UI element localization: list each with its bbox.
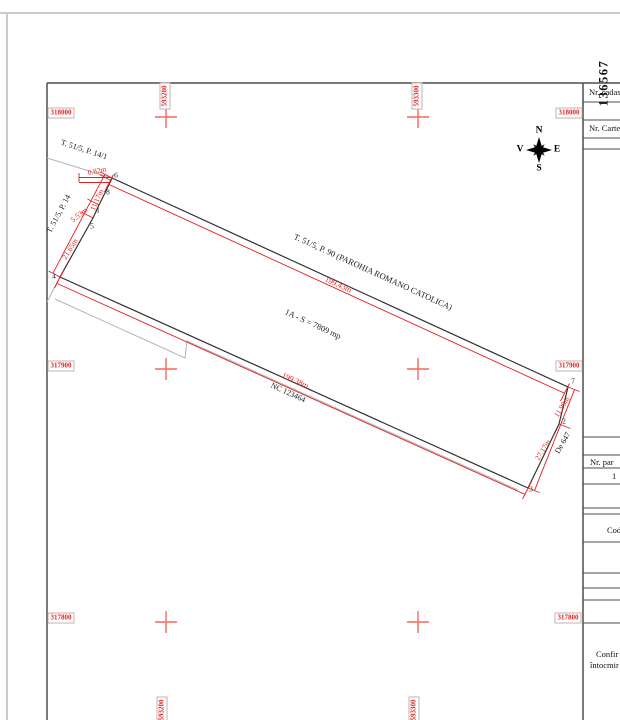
panel-confirm-line2: întocmir (590, 661, 619, 670)
northing-label-317900-right: 317900 (556, 361, 583, 372)
compass-rose (526, 137, 552, 163)
grid-crosses (155, 106, 429, 633)
northing-label-317800-left: 317800 (48, 613, 75, 624)
panel-confirm-line1: Confir (596, 650, 618, 659)
panel-nr-carte-label: Nr. Carte (589, 124, 620, 133)
compass-south-label: S (536, 164, 541, 174)
northing-label-317900-left: 317900 (48, 361, 75, 372)
compass-north-label: N (536, 126, 543, 136)
panel-row-lines (583, 102, 620, 623)
point-2-label: 2 (562, 417, 566, 425)
point-5-label: 5 (90, 222, 94, 230)
point-8-label: 8 (106, 188, 110, 196)
easting-label-593200-top: 593200 (160, 83, 171, 110)
panel-nr-parcela-label: Nr. par (590, 458, 614, 467)
northing-label-318000-right: 318000 (556, 108, 583, 119)
easting-label-593300-top: 593300 (412, 83, 423, 110)
panel-parcela-value: 1 (612, 472, 616, 481)
northing-label-318000-left: 318000 (48, 108, 75, 119)
point-6-label: 6 (114, 171, 118, 179)
point-4-label: 4 (52, 272, 56, 280)
point-3-label: 3 (529, 485, 533, 493)
point-7-label: 7 (571, 377, 575, 385)
dimension-lines (49, 172, 580, 499)
sheet-border (47, 83, 620, 720)
cadastral-plan-page: N E S V 318000 318000 317900 317900 3178… (0, 0, 620, 720)
compass-west-label: V (517, 145, 524, 155)
easting-label-593300-bottom: 593300 (409, 697, 420, 720)
easting-label-593200-bottom: 593200 (157, 697, 168, 720)
northing-label-317800-right: 317800 (555, 613, 582, 624)
parcel-boundary (60, 178, 568, 488)
cadastral-number-vertical: 136567 (597, 60, 612, 107)
point-1-label: 1 (96, 206, 100, 214)
panel-nr-cadastral-label: Nr. cadas (589, 88, 620, 97)
plan-drawing (0, 0, 620, 720)
panel-cod-label: Cod (607, 526, 620, 535)
neighbor-boundary-lines (47, 158, 518, 490)
compass-east-label: E (554, 145, 560, 155)
